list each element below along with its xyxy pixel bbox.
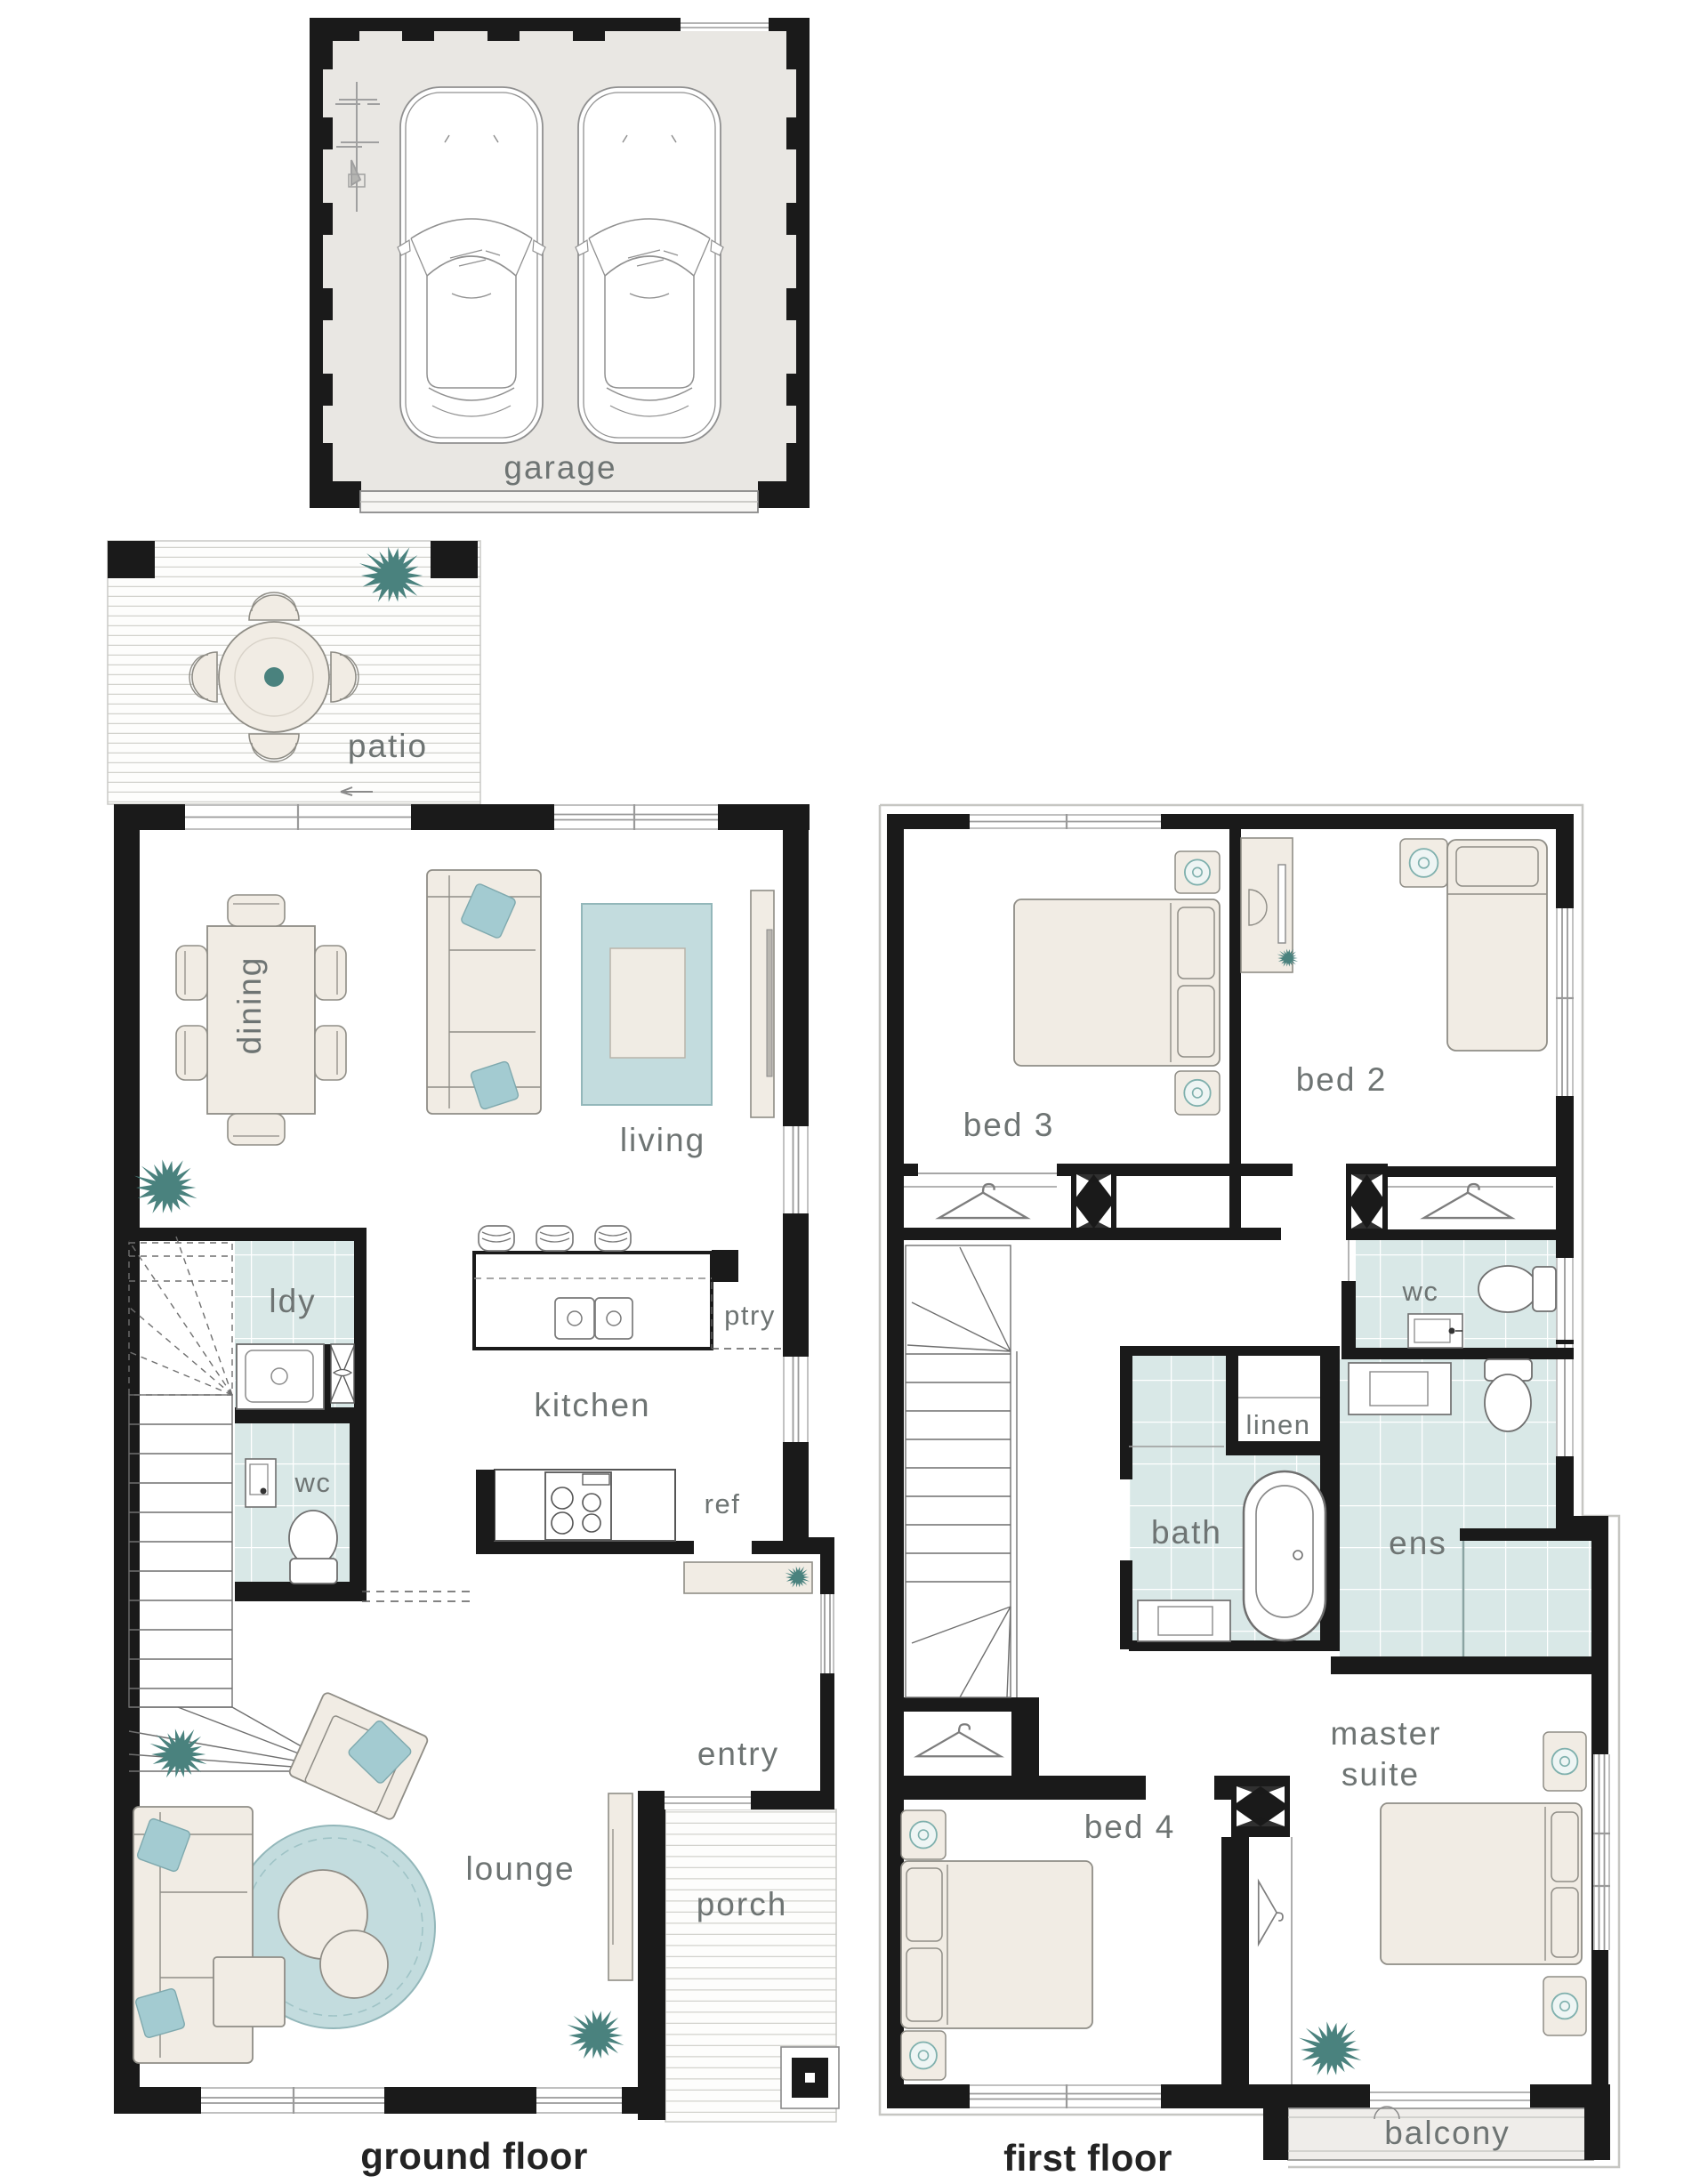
svg-text:master: master [1330, 1715, 1441, 1752]
svg-text:wc: wc [1402, 1276, 1439, 1307]
svg-text:kitchen: kitchen [534, 1387, 650, 1423]
svg-text:entry: entry [697, 1736, 779, 1772]
svg-text:lounge: lounge [465, 1850, 575, 1887]
svg-text:first floor: first floor [1003, 2137, 1172, 2179]
svg-text:living: living [620, 1122, 705, 1158]
svg-text:ref: ref [705, 1488, 741, 1519]
svg-text:ldy: ldy [269, 1283, 316, 1319]
svg-text:linen: linen [1246, 1409, 1311, 1440]
svg-text:suite: suite [1341, 1756, 1420, 1793]
svg-text:patio: patio [348, 728, 428, 764]
svg-text:wc: wc [294, 1467, 332, 1498]
svg-text:balcony: balcony [1384, 2115, 1511, 2151]
svg-text:porch: porch [697, 1886, 788, 1922]
svg-text:ptry: ptry [724, 1300, 776, 1331]
svg-text:bath: bath [1151, 1514, 1222, 1551]
svg-text:bed 3: bed 3 [963, 1107, 1055, 1143]
svg-text:bed 2: bed 2 [1296, 1061, 1388, 1098]
svg-text:garage: garage [504, 449, 616, 486]
svg-text:dining: dining [231, 956, 268, 1055]
svg-text:ens: ens [1389, 1525, 1447, 1561]
svg-text:bed 4: bed 4 [1084, 1809, 1176, 1845]
svg-text:ground floor: ground floor [360, 2135, 588, 2177]
